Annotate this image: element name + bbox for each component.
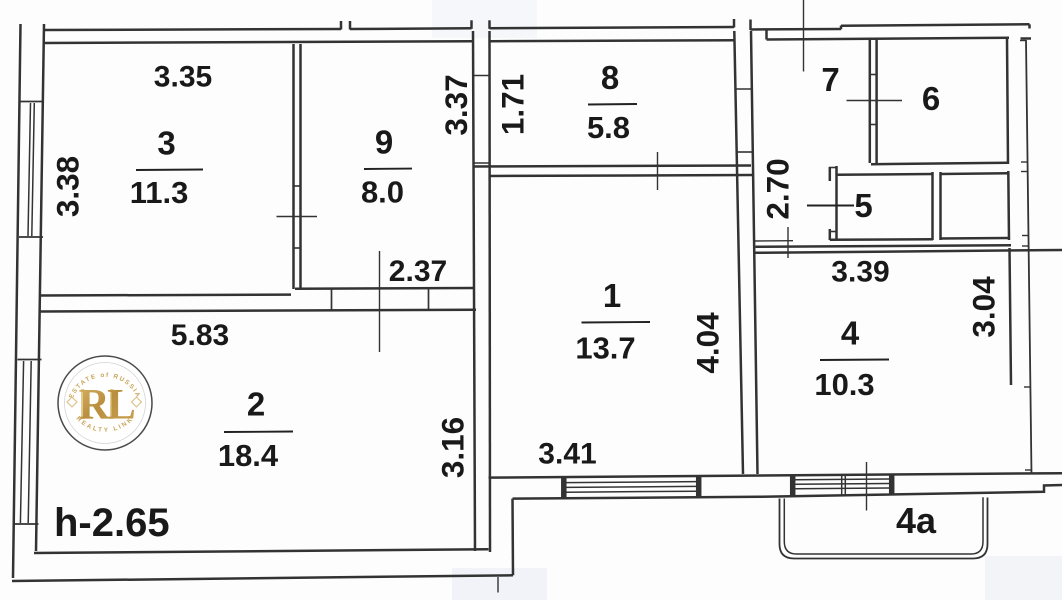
- svg-text:4.04: 4.04: [690, 312, 726, 374]
- svg-text:h-2.65: h-2.65: [54, 501, 170, 545]
- svg-text:1.71: 1.71: [495, 74, 531, 135]
- svg-text:10.3: 10.3: [814, 367, 874, 402]
- svg-text:3.04: 3.04: [966, 276, 1002, 338]
- svg-text:7: 7: [821, 61, 839, 98]
- svg-text:1: 1: [603, 277, 621, 314]
- svg-text:3.39: 3.39: [831, 256, 889, 289]
- svg-text:2.37: 2.37: [389, 255, 447, 288]
- svg-text:3.16: 3.16: [435, 417, 471, 478]
- svg-text:6: 6: [922, 80, 940, 117]
- svg-text:2.70: 2.70: [760, 158, 796, 219]
- svg-text:3: 3: [157, 125, 175, 162]
- svg-text:3.41: 3.41: [538, 438, 596, 471]
- svg-text:13.7: 13.7: [575, 331, 635, 366]
- svg-text:4: 4: [841, 315, 860, 352]
- svg-text:3.38: 3.38: [50, 156, 86, 217]
- svg-text:4a: 4a: [896, 500, 937, 541]
- svg-text:9: 9: [375, 124, 393, 161]
- svg-text:3.35: 3.35: [154, 61, 212, 94]
- svg-text:3.37: 3.37: [438, 74, 474, 135]
- svg-text:2: 2: [247, 386, 265, 423]
- svg-text:5: 5: [854, 187, 872, 224]
- svg-text:11.3: 11.3: [130, 175, 189, 210]
- svg-text:8: 8: [601, 59, 619, 96]
- svg-text:18.4: 18.4: [218, 438, 279, 473]
- svg-text:8.0: 8.0: [361, 175, 404, 210]
- svg-text:5.83: 5.83: [171, 319, 229, 352]
- svg-text:5.8: 5.8: [587, 110, 630, 145]
